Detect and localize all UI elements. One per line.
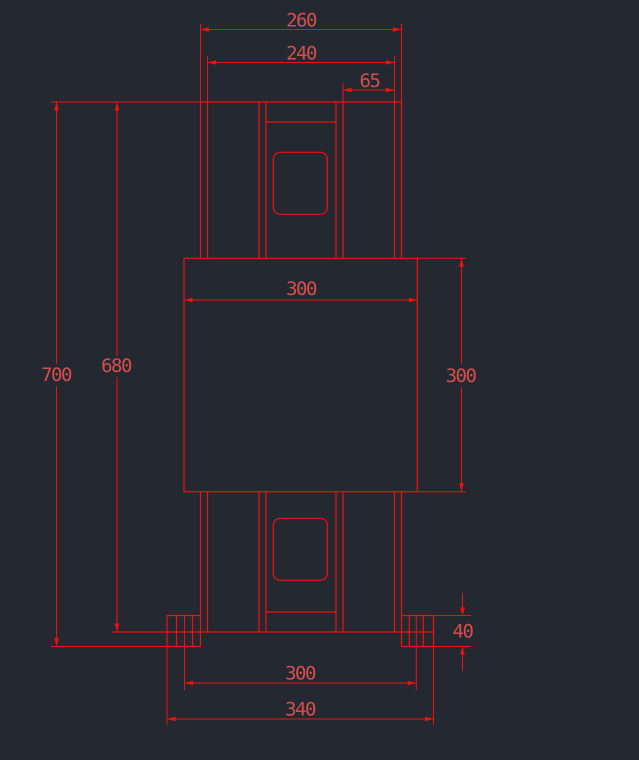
- arrowhead: [460, 647, 465, 655]
- arrowhead: [409, 298, 418, 303]
- dim-label-40: 40: [453, 621, 474, 643]
- dim-label-core-width: 300: [286, 278, 317, 300]
- upper-window: [273, 152, 327, 214]
- dim-top-right-offset: 65: [343, 70, 395, 102]
- dim-label-260: 260: [286, 10, 317, 32]
- arrowhead: [54, 102, 59, 111]
- dim-label-700: 700: [41, 364, 72, 386]
- dim-base-outer-width: 340: [167, 647, 434, 726]
- arrowhead: [459, 483, 464, 492]
- arrowhead: [386, 88, 395, 93]
- dim-base-inner-width: 300: [185, 616, 417, 691]
- arrowhead: [167, 717, 176, 722]
- arrowhead: [425, 717, 434, 722]
- arrowhead: [459, 258, 464, 267]
- arrowhead: [208, 60, 217, 65]
- arrowhead: [343, 88, 352, 93]
- arrowhead: [115, 102, 120, 111]
- dim-label-base-inner: 300: [285, 663, 316, 685]
- dim-label-base-outer: 340: [285, 699, 316, 721]
- arrowhead: [185, 681, 194, 686]
- arrowhead: [393, 27, 402, 32]
- upper-limb-outline: [201, 102, 402, 258]
- arrowhead: [54, 638, 59, 647]
- dim-label-core-height: 300: [446, 365, 477, 387]
- arrowhead: [184, 298, 193, 303]
- right-foot: [402, 616, 434, 647]
- arrowhead: [386, 60, 395, 65]
- dim-core-width: 300: [184, 278, 417, 302]
- dim-foot-height: 40: [434, 593, 474, 671]
- dim-label-680: 680: [101, 355, 132, 377]
- dim-label-65: 65: [360, 70, 380, 92]
- dim-label-240: 240: [286, 43, 317, 65]
- drawing-canvas: 260 240 65 700: [0, 0, 639, 760]
- lower-window: [273, 518, 327, 580]
- dim-core-height: 300: [417, 258, 476, 491]
- geometry: [112, 102, 434, 647]
- arrowhead: [115, 624, 120, 633]
- arrowhead: [408, 681, 417, 686]
- arrowhead: [460, 608, 465, 616]
- left-foot: [167, 616, 201, 647]
- arrowhead: [201, 27, 210, 32]
- dim-frame-height: 680: [101, 102, 132, 632]
- cad-viewport[interactable]: 260 240 65 700: [0, 0, 639, 760]
